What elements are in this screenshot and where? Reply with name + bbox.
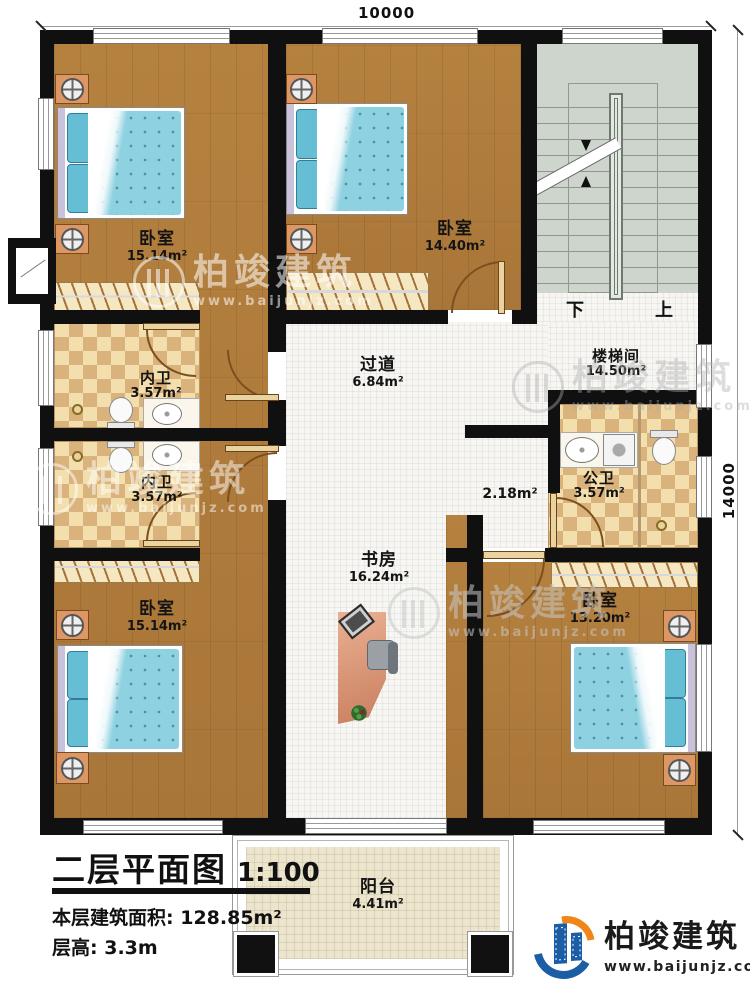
window <box>38 330 54 406</box>
window <box>696 344 712 408</box>
door-leaf <box>483 551 545 559</box>
door-leaf <box>143 540 200 547</box>
nightstand <box>286 74 317 104</box>
door-leaf <box>550 493 557 548</box>
toilet <box>109 447 133 473</box>
dimension-tick <box>732 829 743 840</box>
company-logo-icon <box>528 912 600 982</box>
wall <box>521 30 537 324</box>
window <box>696 644 712 752</box>
wall <box>268 30 286 316</box>
lamp-icon <box>61 78 84 101</box>
floor-area-label: 本层建筑面积: <box>52 907 174 929</box>
bed-headboard <box>688 644 695 752</box>
wall <box>548 390 698 404</box>
room-label-public-bath: 公卫 3.57m² <box>573 470 624 502</box>
nightstand <box>55 74 89 104</box>
door-leaf <box>498 261 505 314</box>
bed-headboard <box>58 108 65 218</box>
window <box>322 28 478 44</box>
door-leaf <box>225 445 279 452</box>
bed <box>570 643 696 753</box>
toilet <box>652 437 676 465</box>
floor-area-value: 128.85m² <box>180 907 281 929</box>
room-label-bedroom-top-left: 卧室 15.14m² <box>127 230 187 264</box>
floor-plan: 下 上 <box>0 0 750 991</box>
window <box>38 98 54 170</box>
stair-arrow-up-icon <box>581 140 591 151</box>
dimension-right: 14000 <box>720 462 738 519</box>
nightstand <box>663 754 696 786</box>
washing-machine <box>603 434 635 466</box>
office-chair-back <box>388 642 398 674</box>
title-underline <box>52 888 310 894</box>
wardrobe <box>54 282 200 311</box>
wardrobe <box>551 562 698 588</box>
room-label-balcony: 阳台 4.41m² <box>352 878 403 912</box>
flue-inner <box>16 248 48 294</box>
stair-arrow-down-icon <box>581 176 591 187</box>
lamp-icon <box>61 228 84 251</box>
room-label-small-hall: 2.18m² <box>482 486 537 502</box>
floor-height-line: 层高: 3.3m <box>52 933 158 960</box>
lamp-icon <box>290 78 313 101</box>
wall <box>465 425 553 438</box>
door-leaf <box>225 394 279 401</box>
stair-handrail <box>609 93 623 300</box>
sink <box>565 437 599 463</box>
nightstand <box>56 610 89 640</box>
wall <box>40 310 200 324</box>
sink <box>152 444 182 466</box>
lamp-icon <box>668 615 691 638</box>
balcony-column-left <box>234 932 278 976</box>
wall <box>40 548 200 561</box>
window <box>83 820 223 834</box>
bathroom-partition <box>638 404 641 548</box>
bed-duvet <box>619 647 665 749</box>
bed-duvet <box>88 649 134 749</box>
floor-height-value: 3.3m <box>104 937 157 959</box>
plant-icon <box>350 704 368 722</box>
window <box>38 448 54 526</box>
drawing-title: 二层平面图1:100 <box>52 843 320 891</box>
dimension-top: 10000 <box>358 4 415 22</box>
stair-down-label: 下 <box>566 296 584 322</box>
nightstand <box>286 224 317 254</box>
lamp-icon <box>290 228 313 251</box>
drawing-scale: 1:100 <box>237 858 320 888</box>
bed-pillow <box>662 698 686 747</box>
lamp-icon <box>668 759 691 782</box>
shower-head-icon <box>656 520 667 531</box>
company-name: 柏竣建筑 <box>604 922 750 953</box>
window <box>696 456 712 518</box>
room-label-study: 书房 16.24m² <box>349 551 409 585</box>
bed-duvet <box>88 111 134 215</box>
wall <box>467 515 483 818</box>
bed-headboard <box>287 104 294 214</box>
sink <box>152 403 182 425</box>
wall <box>286 310 448 324</box>
bed <box>57 645 183 753</box>
stair-up-label: 上 <box>655 296 673 322</box>
room-label-bedroom-top-middle: 卧室 14.40m² <box>425 220 485 254</box>
shower-head-icon <box>72 451 83 462</box>
window <box>93 28 230 44</box>
nightstand <box>663 610 696 642</box>
balcony-column-right <box>468 932 512 976</box>
bed <box>286 103 408 215</box>
room-label-corridor: 过道 6.84m² <box>352 356 403 390</box>
company-logo-text: 柏竣建筑 www.baijunjz.com <box>604 922 750 975</box>
wall <box>268 400 286 446</box>
bed-duvet <box>317 107 363 211</box>
window <box>533 820 665 834</box>
nightstand <box>55 224 89 254</box>
window <box>562 28 663 44</box>
nightstand <box>56 752 89 784</box>
wardrobe <box>286 272 429 311</box>
bed-headboard <box>58 646 65 752</box>
room-label-bedroom-bottom-left: 卧室 15.14m² <box>127 600 187 634</box>
drawing-title-text: 二层平面图 <box>52 850 227 889</box>
dimension-line-right <box>737 30 738 835</box>
company-website: www.baijunjz.com <box>604 959 750 975</box>
bed <box>57 107 185 219</box>
floor-area-line: 本层建筑面积: 128.85m² <box>52 903 282 930</box>
wall <box>268 500 286 818</box>
wall <box>40 428 268 441</box>
lamp-icon <box>61 614 84 637</box>
sliding-door-balcony <box>305 818 447 834</box>
dimension-line-top <box>40 26 712 27</box>
bed-pillow <box>662 649 686 698</box>
wall <box>545 548 698 562</box>
door-leaf <box>143 323 200 330</box>
room-label-ensuite-bath-1: 内卫 3.57m² <box>130 370 181 402</box>
shower-head-icon <box>72 404 83 415</box>
dimension-tick <box>732 24 743 35</box>
floor-height-label: 层高: <box>52 937 98 959</box>
wall <box>268 310 286 352</box>
company-logo-svg <box>528 912 600 982</box>
wall <box>548 404 560 493</box>
lamp-icon <box>61 757 84 780</box>
room-label-stairwell: 楼梯间 14.50m² <box>586 348 646 380</box>
room-label-ensuite-bath-2: 内卫 3.57m² <box>131 474 182 506</box>
room-label-bedroom-bottom-right: 卧室 13.20m² <box>570 592 630 626</box>
